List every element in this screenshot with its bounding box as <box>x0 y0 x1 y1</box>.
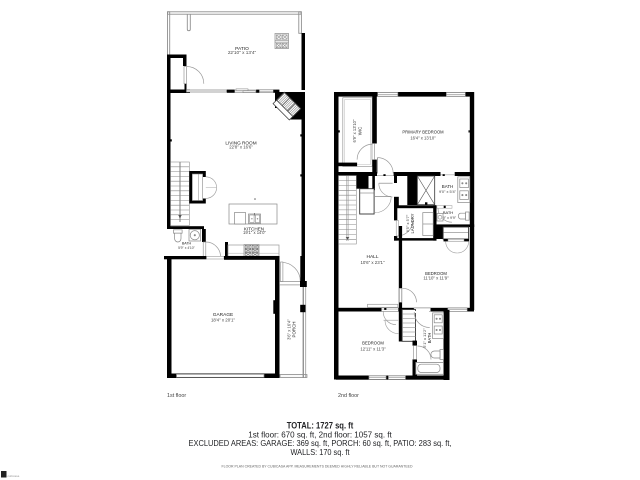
svg-text:LAUNDRY: LAUNDRY <box>410 213 415 233</box>
svg-text:2nd floor: 2nd floor <box>338 393 359 399</box>
svg-text:cubicasa: cubicasa <box>8 474 20 478</box>
svg-text:FLOOR PLAN CREATED BY CUBICASA: FLOOR PLAN CREATED BY CUBICASA APP. MEAS… <box>222 464 413 469</box>
svg-text:5'9" x 4'10": 5'9" x 4'10" <box>178 246 196 250</box>
svg-text:12'11" x 11'3": 12'11" x 11'3" <box>360 346 386 351</box>
svg-text:19'1" x 14'0": 19'1" x 14'0" <box>243 230 266 235</box>
svg-text:1st floor: 1st floor <box>167 393 186 399</box>
svg-text:BEDROOM: BEDROOM <box>362 341 384 346</box>
svg-text:BATH: BATH <box>427 333 432 344</box>
svg-text:16'4" x 13'10": 16'4" x 13'10" <box>410 136 436 141</box>
svg-text:22'10" x 13'4": 22'10" x 13'4" <box>228 50 257 55</box>
svg-text:PORCH: PORCH <box>292 322 297 338</box>
svg-text:18'4" x 20'1": 18'4" x 20'1" <box>211 318 236 323</box>
svg-text:PRIMARY BEDROOM: PRIMARY BEDROOM <box>402 130 444 135</box>
svg-text:6'9" x 13'10": 6'9" x 13'10" <box>352 119 357 142</box>
svg-text:11'10" x 11'9": 11'10" x 11'9" <box>423 276 449 281</box>
svg-text:10'6" x 23'1": 10'6" x 23'1" <box>360 260 385 265</box>
svg-text:BATH: BATH <box>443 210 453 215</box>
svg-text:WIC: WIC <box>357 127 362 136</box>
svg-text:9'0" x 5'4": 9'0" x 5'4" <box>439 189 457 194</box>
svg-text:WALLS: 170 sq. ft: WALLS: 170 sq. ft <box>291 447 351 457</box>
svg-text:22'8" x 16'6": 22'8" x 16'6" <box>229 144 253 149</box>
